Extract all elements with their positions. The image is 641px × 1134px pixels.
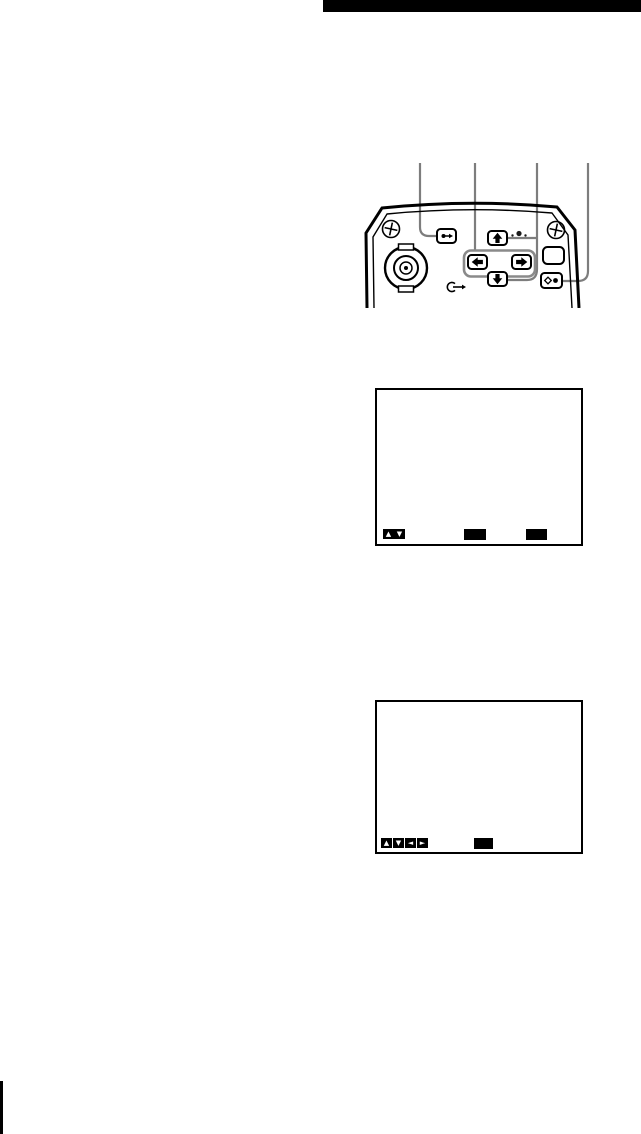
enter-button xyxy=(541,273,562,288)
screw-icon xyxy=(383,221,400,238)
bnc-connector-icon xyxy=(385,244,427,292)
right-arrow-button xyxy=(512,255,531,269)
down-triangle-icon: ▼ xyxy=(393,838,404,848)
page-edge-mark xyxy=(0,1081,3,1134)
down-arrow-button xyxy=(488,272,507,286)
reversed-label-box xyxy=(526,529,547,540)
menu-screen-2: ▲ ▼ ◄ ► xyxy=(375,700,583,854)
screw-icon xyxy=(548,222,565,239)
marker-dots-icon xyxy=(511,231,526,237)
callout-line-menu-button xyxy=(420,163,437,236)
left-triangle-icon: ◄ xyxy=(405,838,416,848)
down-triangle-icon: ▼ xyxy=(394,529,405,539)
return-arrow-icon xyxy=(447,282,466,291)
reversed-label-box xyxy=(474,838,493,849)
up-triangle-icon: ▲ xyxy=(381,838,392,848)
right-triangle-icon: ► xyxy=(417,838,428,848)
menu-screen-1: ▲ ▼ xyxy=(375,388,583,546)
left-arrow-button xyxy=(468,255,487,269)
up-arrow-button xyxy=(488,231,507,245)
up-triangle-icon: ▲ xyxy=(383,529,394,539)
manual-page: ▲ ▼ ▲ ▼ ◄ ► xyxy=(0,0,641,1134)
reversed-label-box xyxy=(464,529,486,540)
top-rule-bar xyxy=(323,0,641,12)
menu-button xyxy=(437,229,456,243)
blank-button xyxy=(543,247,564,264)
control-panel-figure xyxy=(360,158,641,308)
